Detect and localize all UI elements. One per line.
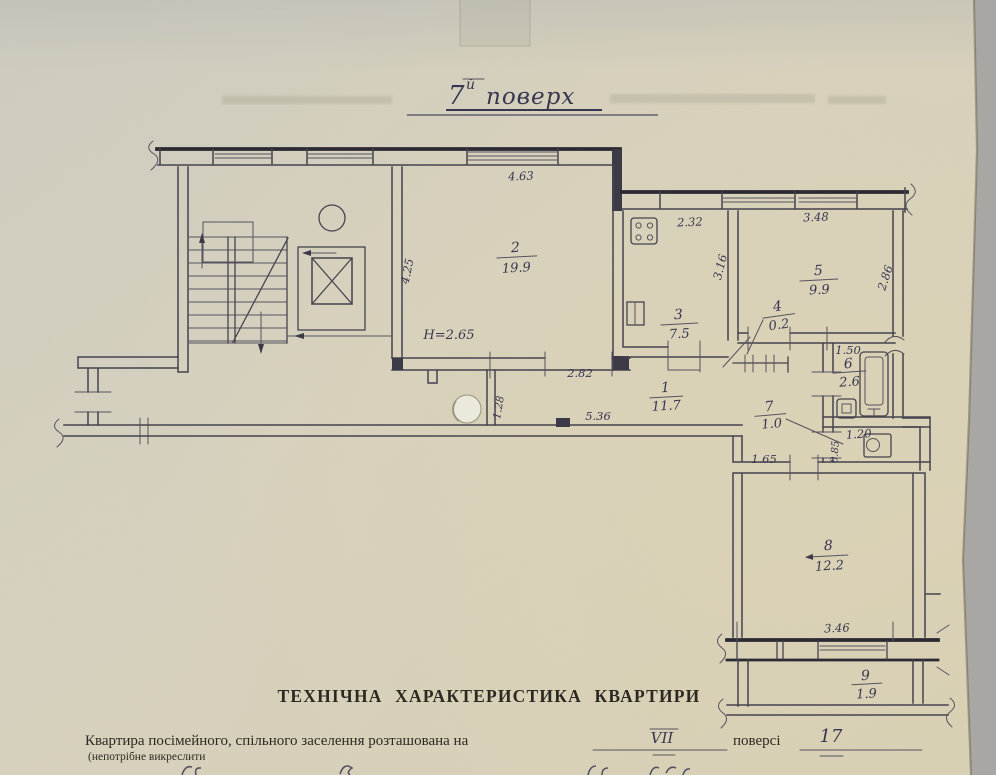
scanned-floor-plan-photo: 7 й поверх — [0, 0, 996, 775]
room-number: 9 — [861, 668, 871, 684]
hole-punch — [453, 395, 481, 423]
room-area: 0.2 — [768, 317, 791, 335]
room-area: 12.2 — [815, 558, 845, 574]
floor-value-handwritten: VII — [651, 729, 675, 747]
footer-heading: ТЕХНІЧНА ХАРАКТЕРИСТИКА КВАРТИРИ — [278, 686, 701, 706]
room-number: 7 — [764, 399, 774, 416]
room-area: 1.0 — [761, 416, 783, 433]
footer-note: (непотрібне викреслити — [88, 751, 205, 763]
dim-wc-depth: 0.85 — [829, 440, 842, 463]
dim-room5-width: 3.48 — [803, 210, 829, 225]
dim-kitchen-width: 2.32 — [676, 215, 703, 230]
dim-balcony-width: 3.46 — [824, 621, 850, 636]
room-number: 5 — [814, 263, 824, 279]
dim-room2-door-wall: 2.82 — [566, 366, 593, 380]
room-area: 1.9 — [856, 686, 877, 702]
room-area: 9.9 — [809, 282, 830, 298]
room-number: 6 — [843, 356, 853, 373]
title-floor-word: поверх — [486, 84, 575, 110]
room-number: 8 — [824, 538, 834, 554]
storeys-value-handwritten: 17 — [820, 726, 843, 747]
faint-stamp-rectangle — [460, 0, 530, 46]
room-area: 2.6 — [838, 374, 861, 390]
floor-plan-svg: 7 й поверх — [0, 0, 996, 775]
dim-corridor-length: 5.36 — [585, 409, 611, 423]
room-number: 1 — [660, 380, 670, 396]
room-number: 2 — [509, 240, 520, 257]
dim-wc-width: 1.20 — [845, 426, 872, 442]
dim-ceiling-height: H=2.65 — [422, 328, 474, 343]
footer-floor-word: поверсі — [733, 733, 781, 749]
footer-body-text: Квартира посімейного, спільного заселенн… — [85, 733, 469, 749]
room-number: 3 — [674, 307, 684, 323]
dim-bath-width: 1.50 — [835, 343, 861, 357]
dim-room2-width: 4.63 — [507, 169, 534, 184]
dim-room8-wall: 1.65 — [751, 452, 777, 466]
title-floor-number: 7 — [448, 81, 465, 111]
room-area: 7.5 — [669, 326, 690, 342]
room-area: 11.7 — [651, 398, 681, 415]
room-area: 19.9 — [502, 260, 532, 276]
